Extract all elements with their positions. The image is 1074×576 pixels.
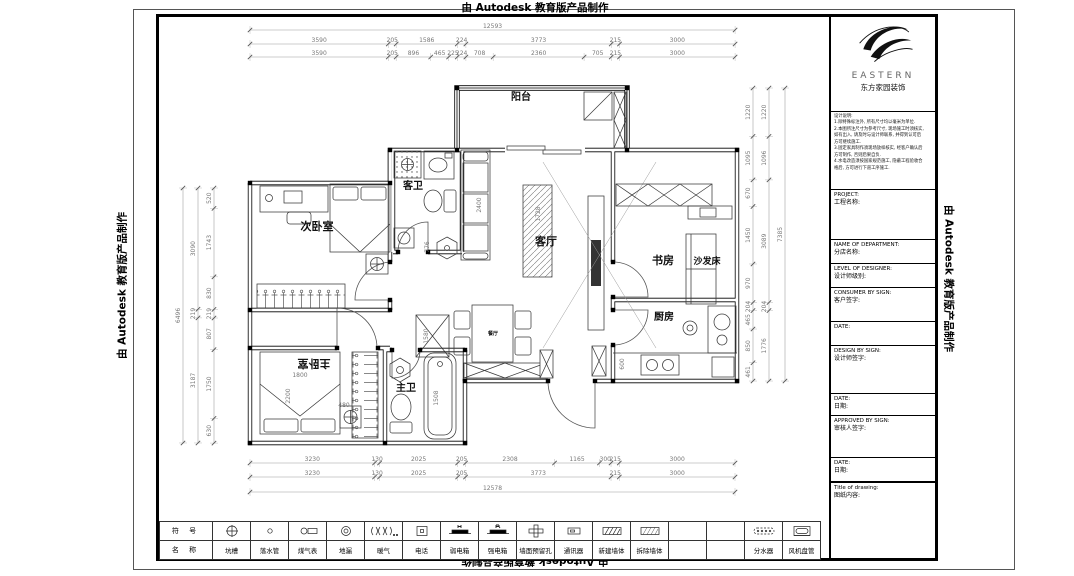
- column-marker: [611, 379, 615, 383]
- intercom-icon: [555, 522, 593, 541]
- svg-text: 1095: [745, 150, 752, 165]
- titleblock-field-7: APPROVED BY SIGN:审核人签字:: [831, 416, 935, 458]
- legend-item-name: 新建墙体: [593, 541, 631, 560]
- svg-text: 2308: [502, 456, 517, 463]
- svg-text: 3000: [670, 50, 685, 57]
- sliding-door-panel: [507, 146, 545, 150]
- inline-dimension: 480: [338, 402, 350, 409]
- titleblock-field-4: DATE:: [831, 322, 935, 346]
- title-block: EASTERN 东方家园装饰 设计说明: 1.除特殊标注外, 所有尺寸均以毫米为…: [829, 17, 935, 558]
- column-marker: [735, 148, 739, 152]
- inline-dimension: 2200: [285, 388, 292, 403]
- svg-text: 2025: [411, 456, 426, 463]
- titleblock-field-cn: 分店名称:: [834, 249, 932, 257]
- desk-monitor: [284, 191, 302, 203]
- column-marker: [388, 260, 392, 264]
- room-label: 沙发床: [693, 255, 721, 267]
- room-label: 次卧室: [301, 219, 334, 233]
- fan-coil-icon: [783, 522, 821, 541]
- svg-text: 1586: [419, 37, 434, 44]
- inline-dimension: 1728: [535, 206, 542, 221]
- svg-text: 7385: [777, 227, 784, 242]
- drawing-sheet: 由 Autodesk 教育版产品制作 由 Autodesk 教育版产品制作 由 …: [0, 0, 1074, 576]
- legend-header-symbol: 符 号: [160, 522, 213, 541]
- svg-text: 708: [474, 50, 486, 57]
- legend-item-name: [669, 541, 707, 560]
- legend-item-name: 通讯器: [555, 541, 593, 560]
- svg-text: 3773: [531, 470, 546, 477]
- titleblock-field-cn: 日期:: [834, 403, 932, 411]
- legend-item-name: 坑槽: [213, 541, 251, 560]
- titleblock-field-cn: 客户签字:: [834, 297, 932, 305]
- legend-item-name: 弱电箱: [441, 541, 479, 560]
- svg-text: 1165: [569, 456, 584, 463]
- inline-dimension: 1580: [423, 328, 430, 343]
- column-marker: [388, 148, 392, 152]
- column-marker: [418, 348, 422, 352]
- kitchen-figure: [683, 321, 697, 335]
- side-table: [437, 237, 457, 259]
- legend-item-name: 拆除墙体: [631, 541, 669, 560]
- sliding-door-panel: [543, 150, 581, 154]
- toilet: [391, 394, 411, 420]
- svg-text: 1776: [761, 338, 768, 353]
- logo-subtitle: 东方家园装饰: [861, 82, 906, 93]
- demolish-wall-icon: [631, 522, 669, 541]
- master-wardrobe: [352, 352, 378, 438]
- titleblock-field-6: DATE:日期:: [831, 394, 935, 416]
- titleblock-field-2: LEVEL OF DESIGNER:设计师级别:: [831, 264, 935, 288]
- room-label: 餐厅: [487, 330, 498, 337]
- svg-text: 3000: [670, 470, 685, 477]
- weak-power-box-icon: [441, 522, 479, 541]
- legend-header-name: 名 称: [160, 541, 213, 560]
- bathtub: [424, 353, 456, 439]
- column-marker: [388, 181, 392, 185]
- svg-text: 1750: [206, 376, 213, 391]
- washbasin-counter: [424, 151, 454, 179]
- desk: [260, 186, 328, 212]
- svg-text: 705: [592, 50, 604, 57]
- column-marker: [463, 379, 467, 383]
- design-notes: 设计说明: 1.除特殊标注外, 所有尺寸均以毫米为单位. 2.本图所注尺寸为参考…: [831, 112, 935, 190]
- pit-icon: [213, 522, 251, 541]
- column-marker: [396, 250, 400, 254]
- svg-text: 1743: [206, 235, 213, 250]
- secondary-bed: [330, 184, 390, 252]
- legend-item-name: 强电箱: [479, 541, 517, 560]
- svg-text: 850: [745, 340, 752, 352]
- column-marker: [248, 308, 252, 312]
- svg-text: 1220: [745, 104, 752, 119]
- svg-text: 12593: [483, 23, 502, 30]
- balcony-duct: [614, 92, 626, 148]
- svg-text: 630: [206, 425, 213, 437]
- svg-text: 12578: [483, 485, 502, 492]
- legend-table: 符 号 名 称坑槽落水管煤气表地漏暖气电话弱电箱强电箱墙面预留孔通讯器新建墙体拆…: [159, 521, 821, 560]
- titleblock-field-en: DATE:: [834, 324, 932, 331]
- svg-text: 2360: [531, 50, 546, 57]
- column-marker: [611, 295, 615, 299]
- titleblock-field-9: Title of drawing:图纸内容:: [831, 482, 935, 558]
- titleblock-field-en: DATE:: [834, 396, 932, 403]
- column-marker: [611, 260, 615, 264]
- svg-text: 465: [434, 50, 446, 57]
- legend-item-name: 电话: [403, 541, 441, 560]
- legend-empty-cell: [669, 522, 707, 541]
- room-label: 厨房: [654, 310, 674, 323]
- svg-text: 219: [206, 308, 213, 320]
- svg-text: 520: [206, 192, 213, 204]
- inline-dimension: 1800: [292, 372, 307, 379]
- svg-text: 670: [745, 187, 752, 199]
- svg-text: 807: [206, 328, 213, 340]
- guest-toilet-tank: [444, 190, 456, 212]
- inline-dimension: 1508: [433, 390, 440, 405]
- svg-text: 830: [206, 287, 213, 299]
- room-label: 主卫: [396, 381, 416, 394]
- titleblock-field-cn: 审核人签字:: [834, 425, 932, 433]
- column-marker: [383, 441, 387, 445]
- svg-text: 3230: [305, 456, 320, 463]
- legend-item-name: 暖气: [365, 541, 403, 560]
- legend-item-name: 墙面预留孔: [517, 541, 555, 560]
- strong-power-box-icon: [479, 522, 517, 541]
- svg-text: 3000: [670, 37, 685, 44]
- svg-text: 1096: [761, 150, 768, 165]
- telephone-icon: [403, 522, 441, 541]
- room-label: 主卧室: [298, 357, 331, 371]
- room-label: 客卫: [402, 179, 423, 192]
- svg-text: 1220: [761, 104, 768, 119]
- titleblock-field-cn: 图纸内容:: [834, 492, 932, 500]
- sideboard: [464, 363, 546, 378]
- desk-lamp: [266, 195, 273, 202]
- kitchen-sink-counter: [708, 306, 736, 353]
- room-label: 客厅: [534, 234, 557, 248]
- column-marker: [546, 379, 550, 383]
- column-marker: [335, 346, 339, 350]
- svg-text: 1450: [745, 227, 752, 242]
- svg-text: 3230: [305, 470, 320, 477]
- logo-name: EASTERN: [852, 71, 915, 81]
- column-marker: [625, 86, 629, 90]
- inline-dimension: 2400: [476, 197, 483, 212]
- wall-hole-icon: [517, 522, 555, 541]
- svg-text: 3090: [190, 241, 197, 256]
- radiator-icon: [365, 522, 403, 541]
- column-marker: [455, 148, 459, 152]
- titleblock-field-5: DESIGN BY SIGN:设计师签字:: [831, 346, 935, 394]
- inline-dimension: 600: [619, 358, 626, 370]
- column-marker: [388, 298, 392, 302]
- svg-text: 461: [745, 366, 752, 378]
- washing-machine: [394, 228, 414, 248]
- design-notes-text: 1.除特殊标注外, 所有尺寸均以毫米为单位. 2.本图所注尺寸为参考尺寸, 现场…: [834, 120, 932, 172]
- svg-text: 970: [745, 277, 752, 289]
- svg-text: 2025: [411, 470, 426, 477]
- column-marker: [611, 308, 615, 312]
- room-label: 阳台: [511, 90, 531, 103]
- legend-item-name: 风机盘管: [783, 541, 821, 560]
- titleblock-field-0: PROJECT:工程名称:: [831, 190, 935, 240]
- titleblock-field-3: CONSUMER BY SIGN:客户签字:: [831, 288, 935, 322]
- titleblock-field-8: DATE:日期:: [831, 458, 935, 482]
- legend-item-name: [707, 541, 745, 560]
- wardrobe-hangers: [257, 284, 345, 308]
- titleblock-field-cn: 工程名称:: [834, 199, 932, 207]
- svg-text: 3089: [761, 233, 768, 248]
- column-marker: [735, 379, 739, 383]
- svg-text: 3590: [312, 50, 327, 57]
- column-marker: [611, 343, 615, 347]
- new-wall-icon: [593, 522, 631, 541]
- svg-text: 896: [408, 50, 420, 57]
- inline-dimension: 776: [424, 241, 431, 253]
- legend-item-name: 煤气表: [289, 541, 327, 560]
- company-logo: EASTERN 东方家园装饰: [831, 17, 935, 112]
- titleblock-field-cn: 设计师签字:: [834, 355, 932, 363]
- svg-text: 3000: [670, 456, 685, 463]
- legend-item-name: 地漏: [327, 541, 365, 560]
- column-marker: [463, 441, 467, 445]
- titleblock-field-1: NAME OF DEPARTMENT:分店名称:: [831, 240, 935, 264]
- svg-text: 3187: [190, 373, 197, 388]
- kitchen-cabinet: [712, 357, 734, 377]
- column-marker: [388, 308, 392, 312]
- svg-text: 465: [745, 314, 752, 326]
- gas-meter-icon: [289, 522, 327, 541]
- column-marker: [625, 148, 629, 152]
- downpipe-icon: [251, 522, 289, 541]
- water-manifold-icon: [745, 522, 783, 541]
- column-marker: [248, 441, 252, 445]
- floor-drain-icon: [327, 522, 365, 541]
- svg-text: 3590: [312, 37, 327, 44]
- column-marker: [463, 348, 467, 352]
- svg-text: 6496: [175, 308, 182, 323]
- column-marker: [248, 181, 252, 185]
- titleblock-field-en: DATE:: [834, 460, 932, 467]
- tv: [591, 240, 601, 286]
- room-label: 书房: [652, 253, 674, 267]
- legend-empty-cell: [707, 522, 745, 541]
- column-marker: [390, 348, 394, 352]
- legend-item-name: 分水器: [745, 541, 783, 560]
- titleblock-field-cn: 设计师级别:: [834, 273, 932, 281]
- column-marker: [248, 346, 252, 350]
- rug-hatch: [523, 185, 552, 277]
- svg-text: 219: [190, 308, 197, 320]
- column-marker: [593, 379, 597, 383]
- eastern-swoosh-logo-icon: [852, 21, 914, 69]
- column-marker: [455, 86, 459, 90]
- column-marker: [376, 346, 380, 350]
- svg-text: 3773: [531, 37, 546, 44]
- basin-hexagon: [390, 358, 410, 382]
- legend-item-name: 落水管: [251, 541, 289, 560]
- guest-toilet: [424, 190, 442, 212]
- titleblock-field-cn: 日期:: [834, 467, 932, 475]
